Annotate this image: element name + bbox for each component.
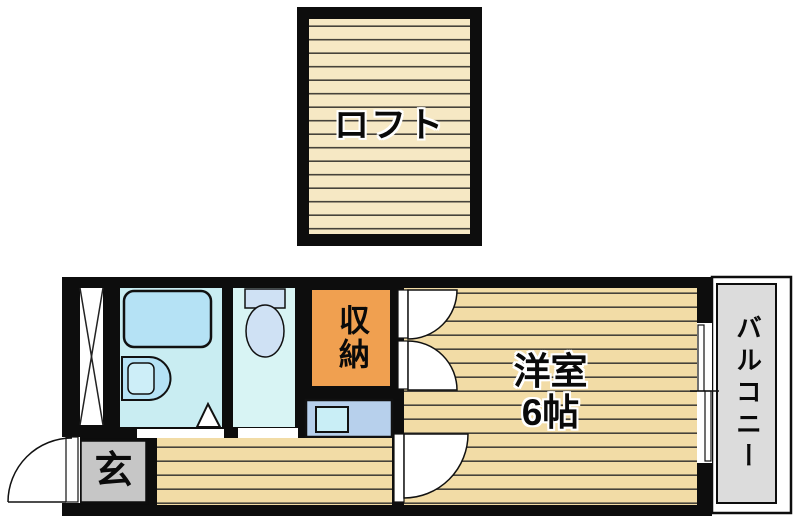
storage-floor [310, 288, 392, 388]
room-door-leaf-icon [394, 434, 404, 502]
bathroom-threshold [137, 429, 224, 438]
hallway-floor [157, 438, 392, 505]
kitchen-sink-icon [316, 407, 348, 432]
balcony-floor [717, 284, 776, 503]
sliding-window-leaf-upper-icon [698, 325, 704, 391]
entrance-door-leaf-icon [66, 437, 78, 502]
toilet-bowl-icon [246, 305, 284, 357]
washbasin-bowl-icon [128, 363, 154, 394]
bathtub-icon [124, 291, 211, 347]
loft-floor [309, 19, 470, 234]
sliding-window-leaf-lower-icon [705, 391, 711, 461]
entrance-floor [80, 440, 147, 503]
floor-plan: ロフト 洋室 6帖 収納 バルコニー 玄 [0, 0, 800, 525]
floor-plan-drawing [0, 0, 800, 525]
storage-door-leaf-upper-icon [398, 290, 408, 338]
storage-door-leaf-lower-icon [398, 341, 408, 389]
